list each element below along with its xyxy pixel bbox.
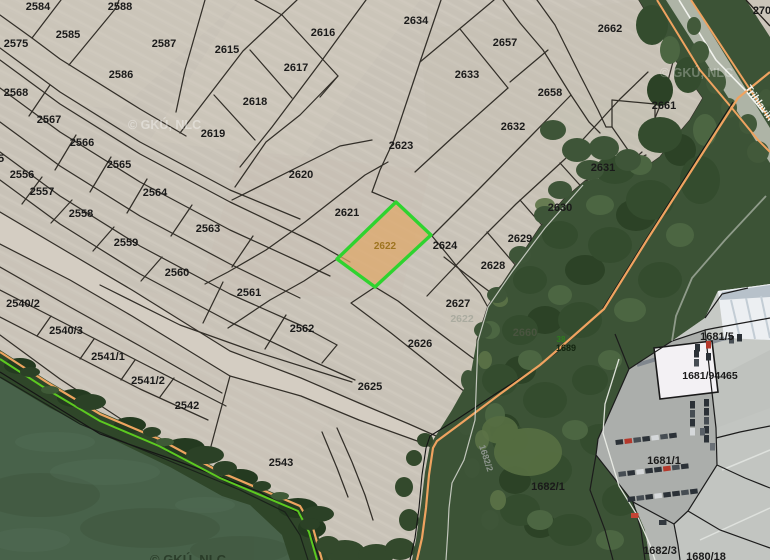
svg-text:1689: 1689 bbox=[556, 343, 576, 353]
svg-text:2626: 2626 bbox=[408, 338, 432, 350]
svg-text:1681/5: 1681/5 bbox=[700, 331, 734, 343]
svg-text:2658: 2658 bbox=[538, 87, 562, 99]
svg-text:2662: 2662 bbox=[598, 23, 622, 35]
svg-text:2628: 2628 bbox=[481, 260, 505, 272]
svg-text:2620: 2620 bbox=[289, 169, 313, 181]
svg-text:2540/3: 2540/3 bbox=[49, 325, 83, 337]
svg-text:2562: 2562 bbox=[290, 323, 314, 335]
svg-text:2585: 2585 bbox=[56, 29, 80, 41]
svg-text:2618: 2618 bbox=[243, 96, 267, 108]
svg-text:2619: 2619 bbox=[201, 128, 225, 140]
svg-text:1681/1: 1681/1 bbox=[647, 455, 681, 467]
svg-text:2543: 2543 bbox=[269, 457, 293, 469]
svg-text:5: 5 bbox=[0, 153, 4, 165]
svg-text:2563: 2563 bbox=[196, 223, 220, 235]
svg-text:1682/1: 1682/1 bbox=[531, 481, 565, 493]
svg-text:© GKÚ, NLC: © GKÚ, NLC bbox=[150, 552, 227, 560]
svg-text:2567: 2567 bbox=[37, 114, 61, 126]
svg-text:2584: 2584 bbox=[26, 1, 51, 13]
svg-text:2541/1: 2541/1 bbox=[91, 351, 125, 363]
svg-text:2630: 2630 bbox=[548, 202, 572, 214]
svg-text:1681/94465: 1681/94465 bbox=[682, 370, 738, 382]
svg-text:2565: 2565 bbox=[107, 159, 131, 171]
svg-text:2586: 2586 bbox=[109, 69, 133, 81]
svg-text:2624: 2624 bbox=[433, 240, 458, 252]
svg-text:2588: 2588 bbox=[108, 1, 132, 13]
svg-text:2541/2: 2541/2 bbox=[131, 375, 165, 387]
svg-text:2622: 2622 bbox=[450, 313, 474, 325]
svg-text:2557: 2557 bbox=[30, 186, 54, 198]
svg-text:2632: 2632 bbox=[501, 121, 525, 133]
svg-text:2623: 2623 bbox=[389, 140, 413, 152]
svg-text:2631: 2631 bbox=[591, 162, 615, 174]
svg-text:270: 270 bbox=[753, 5, 770, 17]
svg-text:2561: 2561 bbox=[237, 287, 261, 299]
svg-text:© GKÚ, NLC: © GKÚ, NLC bbox=[660, 65, 733, 80]
svg-text:2622: 2622 bbox=[374, 241, 397, 252]
svg-text:2633: 2633 bbox=[455, 69, 479, 81]
svg-text:2634: 2634 bbox=[404, 15, 429, 27]
svg-text:© GKÚ, NLC: © GKÚ, NLC bbox=[128, 117, 201, 132]
svg-text:2558: 2558 bbox=[69, 208, 93, 220]
svg-text:2564: 2564 bbox=[143, 187, 168, 199]
svg-text:2615: 2615 bbox=[215, 44, 239, 56]
svg-text:2556: 2556 bbox=[10, 169, 34, 181]
svg-text:2559: 2559 bbox=[114, 237, 138, 249]
svg-text:1680/18: 1680/18 bbox=[686, 551, 726, 560]
svg-text:2587: 2587 bbox=[152, 38, 176, 50]
svg-text:38: 38 bbox=[557, 335, 566, 344]
svg-text:1682/3: 1682/3 bbox=[643, 545, 677, 557]
svg-text:2660: 2660 bbox=[513, 327, 537, 339]
svg-text:2621: 2621 bbox=[335, 207, 359, 219]
svg-text:2661: 2661 bbox=[652, 100, 676, 112]
svg-text:2629: 2629 bbox=[508, 233, 532, 245]
svg-text:2575: 2575 bbox=[4, 38, 28, 50]
svg-text:2616: 2616 bbox=[311, 27, 335, 39]
svg-text:2560: 2560 bbox=[165, 267, 189, 279]
svg-text:2627: 2627 bbox=[446, 298, 470, 310]
svg-text:2657: 2657 bbox=[493, 37, 517, 49]
svg-text:2540/2: 2540/2 bbox=[6, 298, 40, 310]
svg-text:2566: 2566 bbox=[70, 137, 94, 149]
svg-text:2625: 2625 bbox=[358, 381, 382, 393]
svg-text:2617: 2617 bbox=[284, 62, 308, 74]
svg-text:2542: 2542 bbox=[175, 400, 199, 412]
svg-text:2568: 2568 bbox=[4, 87, 28, 99]
